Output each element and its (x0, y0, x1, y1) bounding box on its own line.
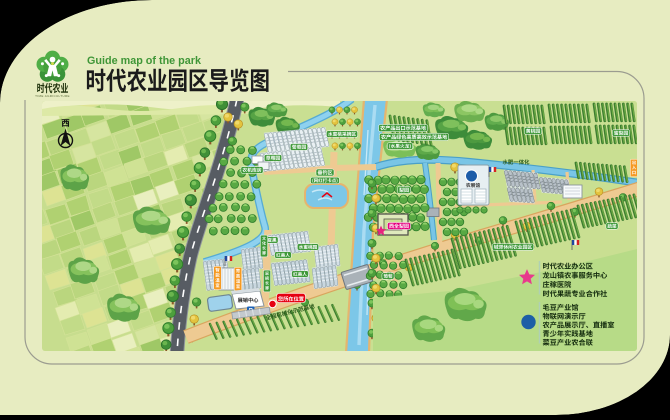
svg-text:Guide map of the park: Guide map of the park (87, 55, 202, 67)
svg-text:TIME AGRICULTURE: TIME AGRICULTURE (35, 94, 70, 98)
